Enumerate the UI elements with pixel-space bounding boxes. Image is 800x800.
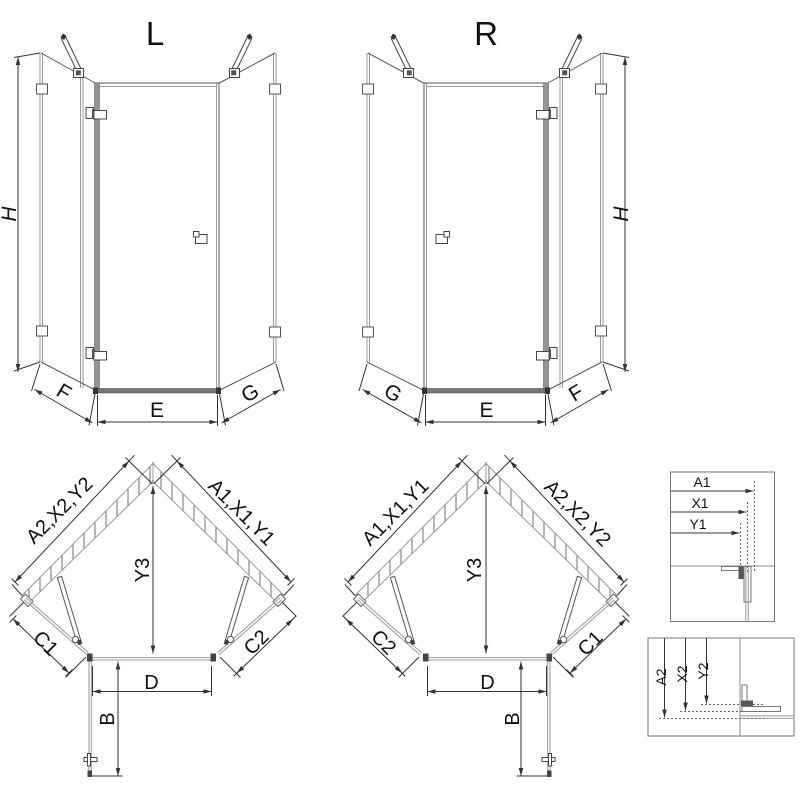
entry-dimension-label: D [144,672,158,694]
threshold [96,389,218,394]
threshold-end-right [216,388,221,395]
detail-label-y2: Y2 [695,662,711,679]
corner-post-left [87,654,93,662]
technical-drawing-page: L H F E G R H G E F [0,0,800,800]
detail-box-top: A1 X1 Y1 [671,472,775,622]
door-dimension-label: B [97,712,119,725]
hinge-pin-bottom [92,349,95,359]
depth-dimension-label: Y3 [464,558,486,582]
depth-dimension-label: Y3 [132,558,154,582]
shower-enclosure-diagram: L H F E G R H G E F [0,0,800,800]
detail-label-x1: X1 [691,495,708,511]
threshold-end-left [93,388,98,395]
detail-box-border [648,638,794,736]
bar-clamp-right [231,70,236,75]
height-dimension-label: H [0,206,21,222]
door-dimension-label: B [502,712,524,725]
detail-box-border [671,472,775,622]
profile-channel [742,707,781,712]
door-width-dimension-label: E [150,399,164,422]
detail-label-x2: X2 [674,665,690,682]
detail-label-a2: A2 [653,668,669,685]
door-end-cap [88,771,93,778]
corner-post-right [211,654,217,662]
variant-title-right: R [474,15,498,52]
profile-flange [742,685,747,701]
hinge-profile [95,83,100,389]
detail-label-a1: A1 [693,474,710,490]
height-dimension-label: H [610,206,633,222]
profile-flange [722,567,741,571]
detail-label-y1: Y1 [689,516,706,532]
door-width-dimension-label: E [479,399,493,422]
entry-dimension-label: D [480,672,494,694]
detail-box-bottom: A2 X2 Y2 [648,638,794,736]
profile-clamp [739,567,745,580]
hinge-pin-top [92,109,95,119]
variant-title-left: L [146,15,164,52]
profile-clamp [741,701,753,707]
bar-clamp-left [76,70,81,75]
